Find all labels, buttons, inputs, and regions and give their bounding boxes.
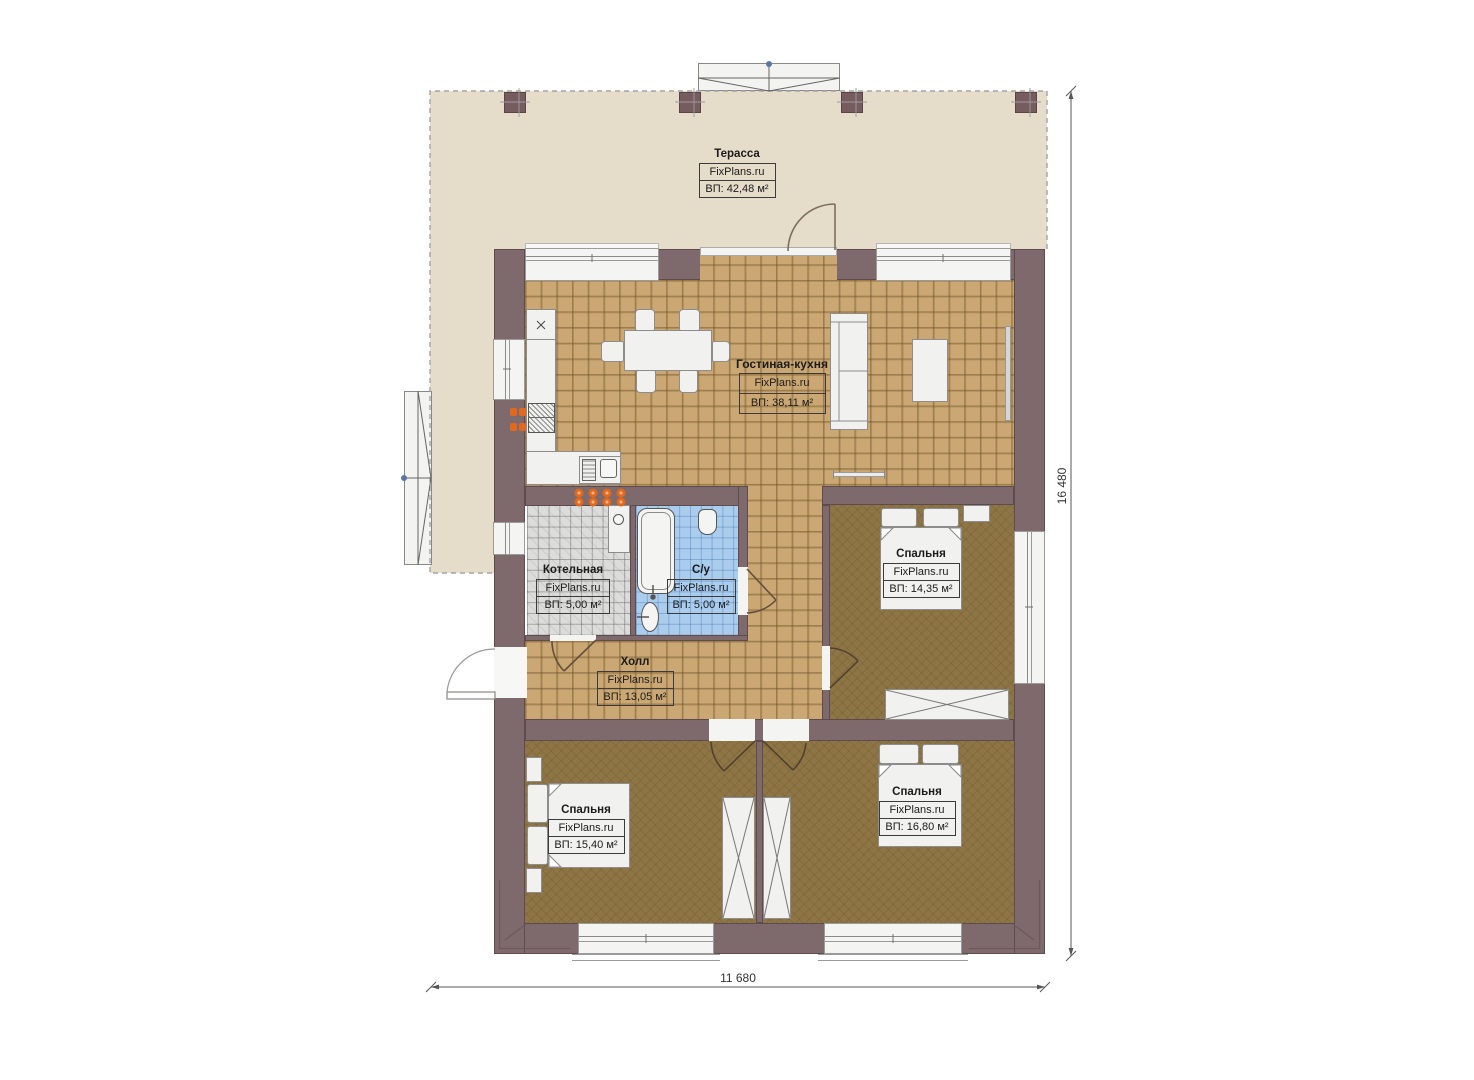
svg-text:11 680: 11 680 bbox=[720, 971, 756, 985]
svg-text:16 480: 16 480 bbox=[1055, 467, 1069, 504]
